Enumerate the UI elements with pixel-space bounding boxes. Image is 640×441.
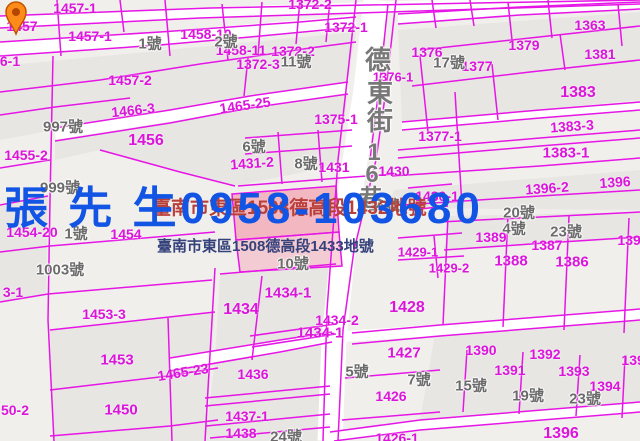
house-number-label: 6號: [242, 140, 265, 155]
house-number-label: 11號: [281, 55, 312, 70]
parcel-number-label: 1465-23: [157, 361, 210, 383]
parcel-number-label: 1427: [387, 346, 420, 361]
parcel-number-label: 1450: [104, 403, 137, 418]
parcel-number-label: 1457-2: [108, 73, 152, 87]
location-pin[interactable]: [0, 0, 32, 36]
house-number-label: 24號: [270, 430, 302, 441]
house-number-label: 7號: [407, 373, 430, 388]
house-number-label: 15號: [455, 379, 487, 394]
house-number-label: 8號: [294, 157, 317, 172]
parcel-number-label: 1430: [378, 164, 409, 178]
parcel-number-label: 1437-1: [225, 409, 269, 423]
parcel-number-label: 1429-2: [429, 262, 469, 275]
parcel-number-label: 1375-1: [314, 112, 358, 126]
parcel-number-label: 6-1: [0, 54, 20, 68]
house-number-label: 997號: [43, 120, 83, 135]
parcel-number-label: 1465-25: [219, 94, 272, 115]
house-number-label: 1號: [138, 37, 161, 52]
parcel-number-label: 1388: [494, 254, 527, 269]
parcel-number-label: 1383-1: [543, 146, 590, 161]
parcel-number-label: 1457-1: [68, 29, 112, 43]
address-label-1433: 臺南市東區1508德高段1433地號: [157, 239, 374, 254]
parcel-number-label: 1436: [237, 367, 268, 381]
house-number-label: 23號: [569, 392, 601, 407]
parcel-number-label: 1426: [375, 389, 406, 403]
parcel-number-label: 3-1: [3, 285, 23, 299]
parcel-number-label: 1377: [461, 59, 492, 73]
parcel-number-label: 1455-2: [4, 148, 48, 162]
parcel-number-label: 1396: [543, 426, 579, 441]
parcel-number-label: 1428: [389, 300, 425, 316]
parcel-number-label: 1386: [555, 255, 588, 270]
parcel-number-label: 1392: [617, 233, 640, 247]
parcel-number-label: 1392: [529, 347, 560, 361]
parcel-number-label: 50-2: [1, 403, 29, 417]
parcel-number-label: 1391: [494, 363, 525, 377]
parcel-number-label: 1393: [558, 364, 589, 378]
parcel-number-label: 1390: [465, 343, 496, 357]
house-number-label: 10號: [277, 257, 309, 272]
parcel-number-label: 1377-1: [418, 129, 462, 143]
parcel-number-label: 1381: [584, 47, 615, 61]
parcel-number-label: 1438: [225, 426, 256, 440]
parcel-number-label: 1431: [318, 160, 349, 174]
parcel-number-label: 1466-3: [111, 101, 156, 119]
house-number-label: 19號: [512, 389, 544, 404]
street-name-char: 東: [367, 80, 393, 106]
parcel-number-label: 1379: [508, 38, 539, 52]
parcel-number-label: 1383-3: [550, 117, 594, 134]
parcel-number-label: 1453: [100, 353, 133, 368]
parcel-number-label: 1372-1: [324, 20, 368, 34]
street-name-char: 街: [367, 108, 393, 134]
parcel-number-label: 1434: [223, 302, 259, 318]
parcel-number-label: 1363: [574, 18, 605, 32]
parcel-number-label: 1453-3: [82, 307, 126, 321]
parcel-number-label: 1434-1: [265, 286, 312, 301]
parcel-number-label: 1434-1: [297, 326, 344, 341]
house-number-label: 2號: [214, 35, 237, 50]
parcel-number-label: 1372-3: [236, 57, 280, 71]
parcel-number-label: 1456: [128, 133, 164, 149]
parcel-number-label: 1426-1: [375, 431, 419, 441]
house-number-label: 5號: [345, 365, 368, 380]
street-name-char: 德: [365, 47, 391, 73]
house-number-label: 17號: [433, 56, 465, 71]
parcel-number-label: 1383: [560, 85, 596, 101]
house-number-label: 1003號: [36, 263, 84, 278]
cadastral-map: 1457-11372-214571457-11458-101372-11458-…: [0, 0, 640, 441]
parcel-number-label: 1429-1: [398, 246, 438, 259]
pin-center-dot: [12, 8, 20, 16]
parcel-number-label: 1395: [621, 353, 640, 367]
contact-phone-overlay: 張 先 生0958-103680: [4, 187, 640, 231]
parcel-number-label: 1457-1: [53, 1, 97, 15]
parcel-number-label: 1372-2: [288, 0, 332, 11]
parcel-number-label: 1431-2: [230, 154, 274, 171]
